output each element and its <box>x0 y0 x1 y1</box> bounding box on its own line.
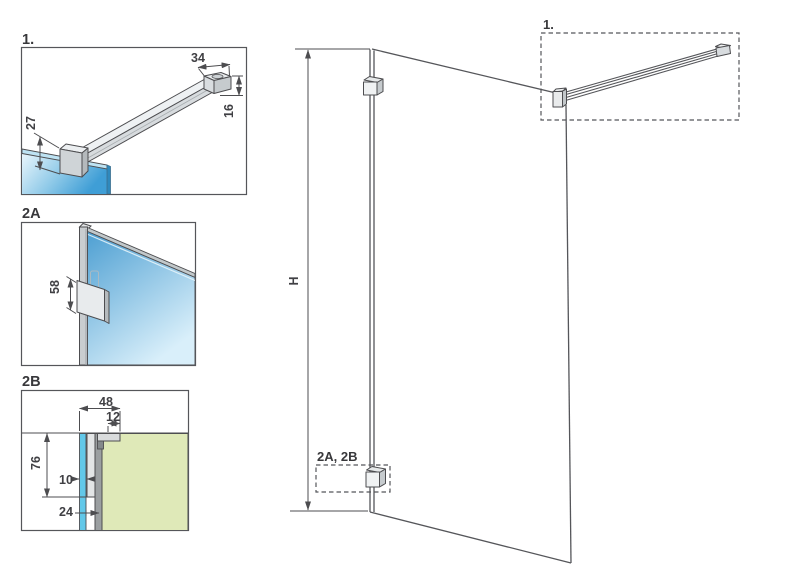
dim-panel-height <box>290 49 370 511</box>
main-panel-view: 1. 2A, 2B H <box>287 17 739 563</box>
dim-text-27: 27 <box>24 116 38 130</box>
dim-text-12: 12 <box>106 410 120 424</box>
glass-section-strip <box>80 434 87 531</box>
dim-text-48: 48 <box>99 395 113 409</box>
dim-text-34: 34 <box>191 51 205 65</box>
dim-text-height: H <box>287 276 301 285</box>
bar-wall-plate <box>204 73 231 94</box>
dim-text-76: 76 <box>29 456 43 470</box>
detail-2b-label: 2B <box>22 374 41 390</box>
dim-text-16: 16 <box>222 104 236 118</box>
detail-support-bar: 1. <box>22 32 247 195</box>
technical-drawing: 1. <box>0 0 800 586</box>
bracket-plate-section <box>87 434 95 498</box>
diagram-page: 1. <box>0 0 800 586</box>
callout-label-support-bar: 1. <box>543 17 554 32</box>
detail-wall-profile-section: 2B <box>22 374 189 531</box>
detail-1-label: 1. <box>22 32 34 48</box>
profile-top-arm <box>98 434 121 442</box>
profile-arm-leg <box>98 441 104 449</box>
bar-glass-clamp <box>553 88 567 107</box>
detail-2a-label: 2A <box>22 206 41 222</box>
callout-label-wall-profile: 2A, 2B <box>317 449 357 464</box>
wall-bracket-top <box>364 77 384 96</box>
wall-section <box>102 434 188 531</box>
dim-text-10: 10 <box>59 473 73 487</box>
dim-text-58: 58 <box>48 280 62 294</box>
wall-bracket-bottom <box>366 467 386 488</box>
dim-text-24: 24 <box>59 505 73 519</box>
glass-panel-outline <box>370 49 571 563</box>
glass-clamp <box>60 144 88 177</box>
detail-wall-bracket-front: 2A 58 <box>22 206 196 366</box>
bar-wall-end <box>716 44 731 57</box>
support-bar <box>566 49 719 101</box>
